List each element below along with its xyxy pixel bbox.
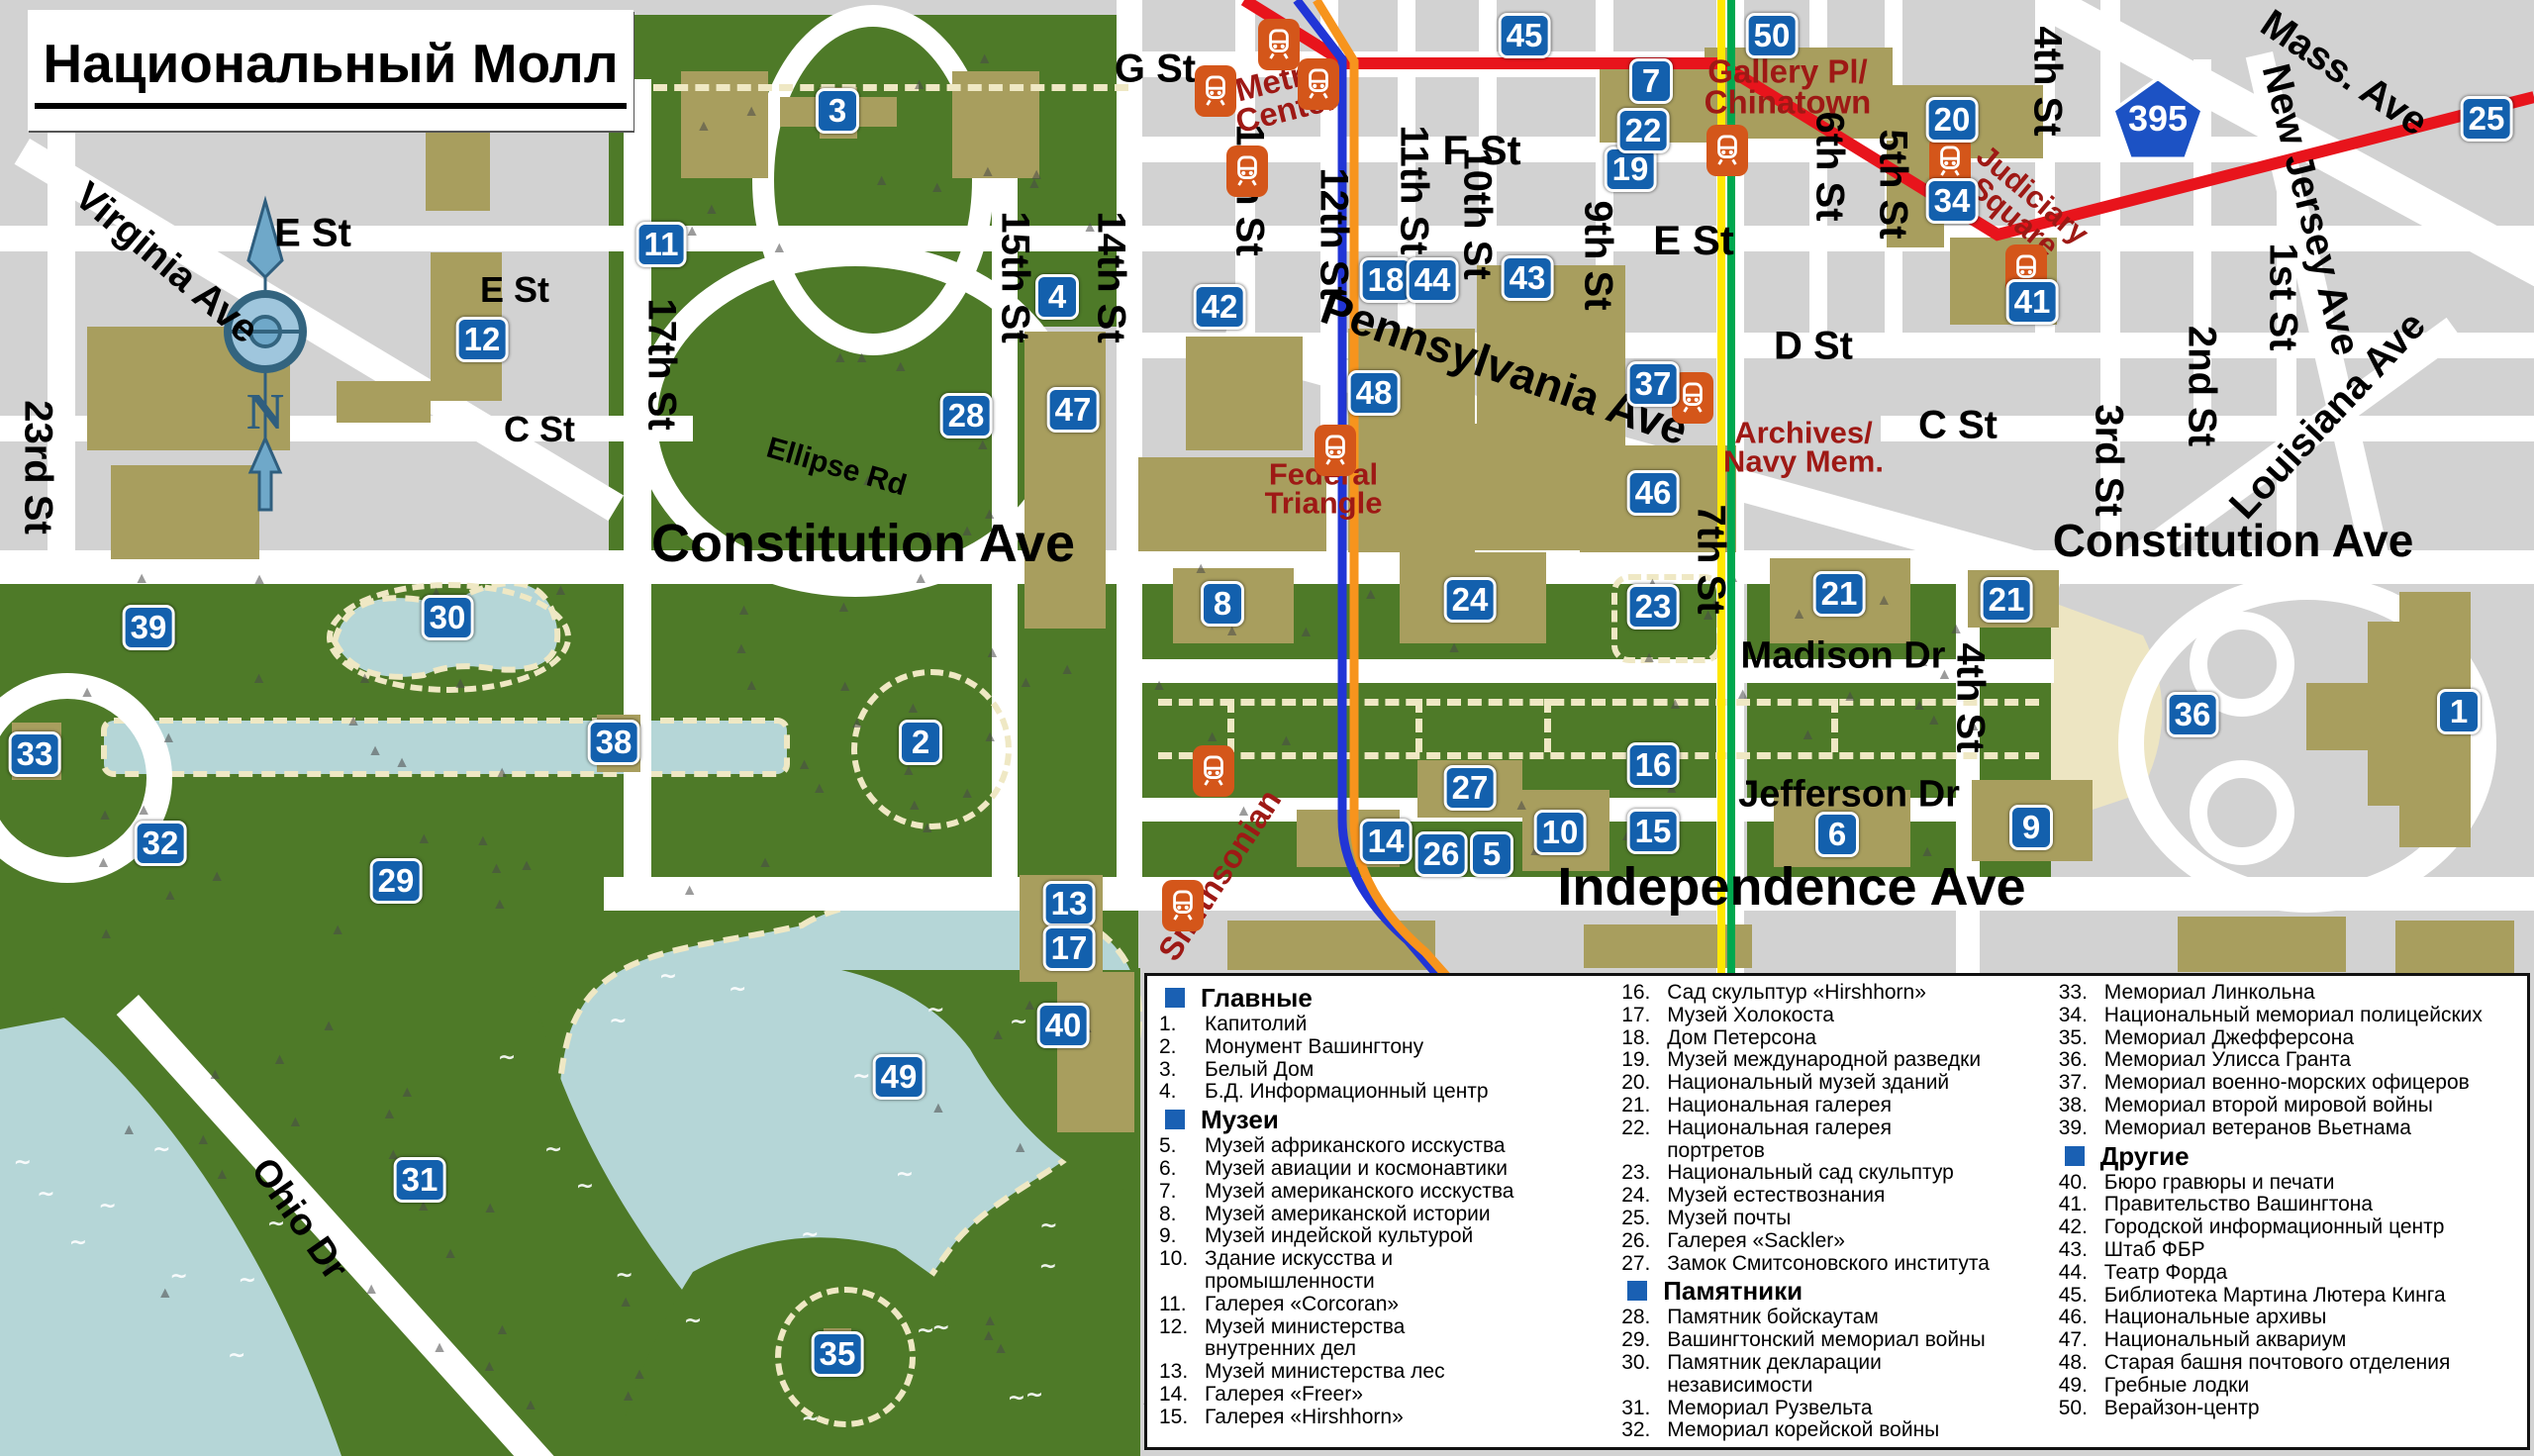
metro-station-icon[interactable] xyxy=(1706,125,1748,176)
legend-item: 27.Замок Смитсоновского института xyxy=(1621,1253,2051,1276)
street-label: 4th St xyxy=(1948,642,1993,752)
legend-section-header: Другие xyxy=(2059,1141,2509,1171)
legend-item-label: Музей американского исскуства xyxy=(1205,1181,1613,1204)
legend-item-number: 1. xyxy=(1159,1014,1205,1036)
legend-item: 14.Галерея «Freer» xyxy=(1159,1384,1613,1407)
metro-station-label: Archives/ Navy Mem. xyxy=(1723,419,1884,477)
legend-item-label: Бюро гравюры и печати xyxy=(2104,1172,2509,1195)
legend-item: 1.Капитолий xyxy=(1159,1014,1613,1036)
street-label: Jefferson Dr xyxy=(1738,774,1960,817)
legend-item-number: 21. xyxy=(1621,1095,1667,1117)
legend-item: 45.Библиотека Мартина Лютера Кинга xyxy=(2059,1285,2509,1308)
metro-station-icon[interactable] xyxy=(1162,880,1204,931)
legend-item-number: 43. xyxy=(2059,1239,2104,1262)
legend-item: 46.Национальные архивы xyxy=(2059,1307,2509,1329)
legend-item: 34.Национальный мемориал полицейских xyxy=(2059,1005,2509,1027)
legend-item: 25.Музей почты xyxy=(1621,1208,2051,1230)
legend-item-number: 35. xyxy=(2059,1027,2104,1050)
poi-marker-22[interactable]: 22 xyxy=(1617,108,1670,153)
legend-item-label: Б.Д. Информационный центр xyxy=(1205,1081,1613,1104)
street-label: E St xyxy=(274,212,351,256)
legend-item-number: 11. xyxy=(1159,1294,1205,1316)
legend-item-label: Дом Петерсона xyxy=(1667,1027,2051,1050)
poi-marker-18[interactable]: 18 xyxy=(1360,257,1413,303)
legend-item-label: Национальная галерея xyxy=(1667,1095,2051,1117)
legend-item-number: 30. xyxy=(1621,1352,1667,1398)
legend-item-label: Мемориал второй мировой войны xyxy=(2104,1095,2509,1117)
poi-marker-8[interactable]: 8 xyxy=(1201,581,1244,627)
legend-item-number: 45. xyxy=(2059,1285,2104,1308)
legend-item-label: Музей международной разведки xyxy=(1667,1049,2051,1072)
legend-item-label: Театр Форда xyxy=(2104,1262,2509,1285)
legend-column-3: 33.Мемориал Линкольна34.Национальный мем… xyxy=(2059,982,2517,1443)
legend-item-number: 2. xyxy=(1159,1036,1205,1059)
poi-marker-2[interactable]: 2 xyxy=(899,720,942,765)
poi-marker-49[interactable]: 49 xyxy=(873,1054,926,1100)
legend-section-header: Музеи xyxy=(1159,1105,1613,1134)
legend-item-number: 5. xyxy=(1159,1135,1205,1158)
map-title: Национальный Молл xyxy=(35,32,626,109)
legend-item-label: Галерея «Freer» xyxy=(1205,1384,1613,1407)
poi-marker-11[interactable]: 11 xyxy=(636,222,687,267)
street-label: E St xyxy=(480,269,549,311)
legend-item-label: Мемориал Рузвельта xyxy=(1667,1398,2051,1420)
legend-item: 16.Сад скульптур «Hirshhorn» xyxy=(1621,982,2051,1005)
legend-item: 17.Музей Холокоста xyxy=(1621,1005,2051,1027)
legend-item: 33.Мемориал Линкольна xyxy=(2059,982,2509,1005)
legend-item-label: Национальный музей зданий xyxy=(1667,1072,2051,1095)
legend-item-label: Мемориал Улисса Гранта xyxy=(2104,1049,2509,1072)
legend-section-title: Главные xyxy=(1201,983,1313,1013)
poi-marker-7[interactable]: 7 xyxy=(1629,58,1673,104)
legend-item: 15.Галерея «Hirshhorn» xyxy=(1159,1407,1613,1429)
legend-item-number: 6. xyxy=(1159,1158,1205,1181)
poi-marker-45[interactable]: 45 xyxy=(1499,13,1551,58)
street-label: 12th St xyxy=(1312,167,1356,299)
legend-item-label: Мемориал Джефферсона xyxy=(2104,1027,2509,1050)
legend-item-number: 15. xyxy=(1159,1407,1205,1429)
legend-item: 11.Галерея «Corcoran» xyxy=(1159,1294,1613,1316)
street-label: C St xyxy=(1918,404,1998,448)
legend-item-number: 8. xyxy=(1159,1204,1205,1226)
poi-marker-12[interactable]: 12 xyxy=(456,317,509,362)
street-label: 5th St xyxy=(1871,129,1915,239)
legend-item-label: Гребные лодки xyxy=(2104,1375,2509,1398)
legend-item: 5.Музей африканского исскуства xyxy=(1159,1135,1613,1158)
legend-item-label: Вашингтонский мемориал войны xyxy=(1667,1329,2051,1352)
legend-item-number: 26. xyxy=(1621,1230,1667,1253)
legend-item-label: Национальный сад скульптур xyxy=(1667,1162,2051,1185)
poi-marker-39[interactable]: 39 xyxy=(123,605,175,650)
legend-item-label: Белый Дом xyxy=(1205,1059,1613,1082)
legend-section-title: Памятники xyxy=(1663,1276,1803,1306)
legend-item-label: Здание искусства и промышленности xyxy=(1205,1248,1613,1294)
legend-item: 19.Музей международной разведки xyxy=(1621,1049,2051,1072)
legend-item-label: Музей министерства внутренних дел xyxy=(1205,1316,1613,1362)
legend-item-label: Памятник бойскаутам xyxy=(1667,1307,2051,1329)
street-label: 23rd St xyxy=(16,400,60,534)
legend-item: 30.Памятник декларации независимости xyxy=(1621,1352,2051,1398)
legend-item: 20.Национальный музей зданий xyxy=(1621,1072,2051,1095)
legend-item-label: Национальный мемориал полицейских xyxy=(2104,1005,2509,1027)
legend-item-number: 27. xyxy=(1621,1253,1667,1276)
legend-bullet-icon xyxy=(1627,1281,1647,1301)
legend-column-1: Главные1.Капитолий2.Монумент Вашингтону3… xyxy=(1159,982,1621,1443)
legend-item: 47.Национальный аквариум xyxy=(2059,1329,2509,1352)
legend-item-number: 36. xyxy=(2059,1049,2104,1072)
legend-item-number: 13. xyxy=(1159,1361,1205,1384)
legend-item-label: Музей естествознания xyxy=(1667,1185,2051,1208)
legend-item-number: 16. xyxy=(1621,982,1667,1005)
street-label: G St xyxy=(1115,48,1196,92)
legend-item-number: 19. xyxy=(1621,1049,1667,1072)
legend-item: 24.Музей естествознания xyxy=(1621,1185,2051,1208)
legend-item-number: 24. xyxy=(1621,1185,1667,1208)
legend-item: 12.Музей министерства внутренних дел xyxy=(1159,1316,1613,1362)
metro-station-icon[interactable] xyxy=(1298,58,1339,110)
metro-station-label: Gallery Pl/ Chinatown xyxy=(1705,56,1872,119)
poi-marker-29[interactable]: 29 xyxy=(370,858,423,904)
poi-marker-43[interactable]: 43 xyxy=(1502,255,1554,301)
legend-item-number: 42. xyxy=(2059,1216,2104,1239)
poi-marker-34[interactable]: 34 xyxy=(1926,178,1979,224)
legend-item-number: 7. xyxy=(1159,1181,1205,1204)
poi-marker-9[interactable]: 9 xyxy=(2009,805,2053,850)
legend-item: 9.Музей индейской культурой xyxy=(1159,1225,1613,1248)
legend-item-number: 38. xyxy=(2059,1095,2104,1117)
legend-item: 49.Гребные лодки xyxy=(2059,1375,2509,1398)
poi-marker-28[interactable]: 28 xyxy=(940,393,993,438)
street-label: Constitution Ave xyxy=(651,513,1075,574)
metro-station-icon[interactable] xyxy=(1193,745,1234,797)
legend-item: 23.Национальный сад скульптур xyxy=(1621,1162,2051,1185)
poi-marker-41[interactable]: 41 xyxy=(2006,279,2059,325)
legend-item-label: Монумент Вашингтону xyxy=(1205,1036,1613,1059)
legend-item: 26.Галерея «Sackler» xyxy=(1621,1230,2051,1253)
legend-item-number: 20. xyxy=(1621,1072,1667,1095)
legend-item-number: 37. xyxy=(2059,1072,2104,1095)
legend-item-number: 47. xyxy=(2059,1329,2104,1352)
poi-marker-3[interactable]: 3 xyxy=(816,88,859,134)
legend-item-label: Музей почты xyxy=(1667,1208,2051,1230)
legend-item-label: Штаб ФБР xyxy=(2104,1239,2509,1262)
legend-item-label: Мемориал корейской войны xyxy=(1667,1419,2051,1442)
poi-marker-50[interactable]: 50 xyxy=(1746,13,1799,58)
legend-item-label: Галерея «Corcoran» xyxy=(1205,1294,1613,1316)
legend-item-number: 4. xyxy=(1159,1081,1205,1104)
street-label: 15th St xyxy=(993,211,1037,342)
legend-item: 44.Театр Форда xyxy=(2059,1262,2509,1285)
poi-marker-20[interactable]: 20 xyxy=(1926,97,1979,143)
legend-item-number: 25. xyxy=(1621,1208,1667,1230)
legend-item: 29.Вашингтонский мемориал войны xyxy=(1621,1329,2051,1352)
legend-item-number: 41. xyxy=(2059,1194,2104,1216)
legend-item-number: 50. xyxy=(2059,1398,2104,1420)
legend-item-label: Национальная галерея портретов xyxy=(1667,1117,2051,1163)
legend-item-number: 44. xyxy=(2059,1262,2104,1285)
legend-item-number: 32. xyxy=(1621,1419,1667,1442)
legend-item-number: 49. xyxy=(2059,1375,2104,1398)
legend-item-label: Правительство Вашингтона xyxy=(2104,1194,2509,1216)
legend-item-label: Национальный аквариум xyxy=(2104,1329,2509,1352)
legend-item-number: 14. xyxy=(1159,1384,1205,1407)
poi-marker-48[interactable]: 48 xyxy=(1348,370,1401,416)
legend-item-label: Галерея «Hirshhorn» xyxy=(1205,1407,1613,1429)
legend-item-label: Верайзон-центр xyxy=(2104,1398,2509,1420)
street-label: C St xyxy=(504,409,575,450)
legend-bullet-icon xyxy=(1165,1110,1185,1129)
legend-item-label: Сад скульптур «Hirshhorn» xyxy=(1667,982,2051,1005)
legend-section-header: Памятники xyxy=(1621,1276,2051,1306)
legend-section-title: Музеи xyxy=(1201,1105,1279,1134)
legend-section-header: Главные xyxy=(1159,983,1613,1013)
legend-item-label: Замок Смитсоновского института xyxy=(1667,1253,2051,1276)
legend-item: 43.Штаб ФБР xyxy=(2059,1239,2509,1262)
legend-item-label: Мемориал ветеранов Вьетнама xyxy=(2104,1117,2509,1140)
street-label: 3rd St xyxy=(2087,404,2131,516)
street-label: 4th St xyxy=(2025,26,2070,136)
legend-item-label: Музей Холокоста xyxy=(1667,1005,2051,1027)
map-legend: Главные1.Капитолий2.Монумент Вашингтону3… xyxy=(1144,973,2530,1450)
svg-text:N: N xyxy=(246,384,284,440)
legend-item: 21.Национальная галерея xyxy=(1621,1095,2051,1117)
street-label: Independence Ave xyxy=(1557,856,2025,918)
street-label: 1st St xyxy=(2261,243,2305,351)
legend-item-number: 17. xyxy=(1621,1005,1667,1027)
map-title-box: Национальный Молл xyxy=(28,10,633,131)
legend-item: 7.Музей американского исскуства xyxy=(1159,1181,1613,1204)
legend-item: 22.Национальная галерея портретов xyxy=(1621,1117,2051,1163)
poi-marker-5[interactable]: 5 xyxy=(1470,831,1513,877)
legend-section-title: Другие xyxy=(2100,1141,2190,1171)
street-label: 14th St xyxy=(1089,211,1133,342)
poi-marker-21[interactable]: 21 xyxy=(1813,571,1866,617)
poi-marker-35[interactable]: 35 xyxy=(812,1331,864,1377)
poi-marker-36[interactable]: 36 xyxy=(2167,692,2219,737)
poi-marker-14[interactable]: 14 xyxy=(1360,819,1413,864)
legend-item-label: Музей индейской культурой xyxy=(1205,1225,1613,1248)
legend-item-label: Библиотека Мартина Лютера Кинга xyxy=(2104,1285,2509,1308)
legend-item-label: Национальные архивы xyxy=(2104,1307,2509,1329)
legend-item-label: Мемориал Линкольна xyxy=(2104,982,2509,1005)
street-label: 9th St xyxy=(1576,200,1620,310)
street-label: D St xyxy=(1774,325,1853,369)
poi-marker-4[interactable]: 4 xyxy=(1035,274,1079,320)
poi-marker-15[interactable]: 15 xyxy=(1627,809,1680,854)
poi-marker-47[interactable]: 47 xyxy=(1047,387,1100,433)
legend-item: 36.Мемориал Улисса Гранта xyxy=(2059,1049,2509,1072)
poi-marker-23[interactable]: 23 xyxy=(1627,584,1680,630)
poi-marker-42[interactable]: 42 xyxy=(1194,284,1246,330)
poi-marker-26[interactable]: 26 xyxy=(1415,831,1468,877)
poi-marker-17[interactable]: 17 xyxy=(1043,925,1096,971)
legend-bullet-icon xyxy=(1165,988,1185,1008)
poi-marker-44[interactable]: 44 xyxy=(1407,257,1459,303)
legend-item: 10.Здание искусства и промышленности xyxy=(1159,1248,1613,1294)
legend-item-label: Городской информационный центр xyxy=(2104,1216,2509,1239)
metro-station-icon[interactable] xyxy=(1226,146,1268,197)
legend-item-number: 31. xyxy=(1621,1398,1667,1420)
legend-item-number: 39. xyxy=(2059,1117,2104,1140)
street-label: Madison Dr xyxy=(1741,635,1946,678)
poi-marker-21[interactable]: 21 xyxy=(1981,577,2033,623)
street-label: 2nd St xyxy=(2180,326,2224,446)
street-label: Constitution Ave xyxy=(2053,514,2414,567)
street-label: 11th St xyxy=(1392,125,1436,254)
legend-item-number: 3. xyxy=(1159,1059,1205,1082)
street-label: E St xyxy=(1653,217,1734,264)
legend-item: 18.Дом Петерсона xyxy=(1621,1027,2051,1050)
legend-item-label: Капитолий xyxy=(1205,1014,1613,1036)
legend-item: 28.Памятник бойскаутам xyxy=(1621,1307,2051,1329)
poi-marker-46[interactable]: 46 xyxy=(1627,470,1680,516)
legend-item-label: Музей американской истории xyxy=(1205,1204,1613,1226)
legend-item-number: 22. xyxy=(1621,1117,1667,1163)
legend-item: 38.Мемориал второй мировой войны xyxy=(2059,1095,2509,1117)
legend-item: 31.Мемориал Рузвельта xyxy=(1621,1398,2051,1420)
legend-item: 32.Мемориал корейской войны xyxy=(1621,1419,2051,1442)
legend-item: 50.Верайзон-центр xyxy=(2059,1398,2509,1420)
poi-marker-38[interactable]: 38 xyxy=(588,720,640,765)
poi-marker-25[interactable]: 25 xyxy=(2461,96,2513,142)
legend-item-label: Музей министерства лес xyxy=(1205,1361,1613,1384)
street-label: 10th St xyxy=(1455,147,1500,279)
poi-marker-30[interactable]: 30 xyxy=(422,595,474,640)
legend-item: 42.Городской информационный центр xyxy=(2059,1216,2509,1239)
poi-marker-33[interactable]: 33 xyxy=(9,731,61,777)
street-label: 7th St xyxy=(1689,504,1733,614)
poi-marker-1[interactable]: 1 xyxy=(2437,689,2481,734)
legend-item: 8.Музей американской истории xyxy=(1159,1204,1613,1226)
poi-marker-6[interactable]: 6 xyxy=(1815,812,1859,857)
street-label: 6th St xyxy=(1807,111,1852,221)
legend-item-number: 12. xyxy=(1159,1316,1205,1362)
legend-item-number: 46. xyxy=(2059,1307,2104,1329)
legend-item: 13.Музей министерства лес xyxy=(1159,1361,1613,1384)
poi-marker-16[interactable]: 16 xyxy=(1627,742,1680,788)
legend-item-number: 48. xyxy=(2059,1352,2104,1375)
legend-item-number: 10. xyxy=(1159,1248,1205,1294)
metro-station-icon[interactable] xyxy=(1195,65,1236,117)
legend-item-label: Старая башня почтового отделения xyxy=(2104,1352,2509,1375)
legend-item-label: Мемориал военно-морских офицеров xyxy=(2104,1072,2509,1095)
metro-station-icon[interactable] xyxy=(1315,425,1356,476)
legend-item: 35.Мемориал Джефферсона xyxy=(2059,1027,2509,1050)
legend-item: 6.Музей авиации и космонавтики xyxy=(1159,1158,1613,1181)
legend-item: 40.Бюро гравюры и печати xyxy=(2059,1172,2509,1195)
poi-marker-27[interactable]: 27 xyxy=(1444,765,1497,811)
legend-item: 3.Белый Дом xyxy=(1159,1059,1613,1082)
legend-item: 4.Б.Д. Информационный центр xyxy=(1159,1081,1613,1104)
legend-item-number: 29. xyxy=(1621,1329,1667,1352)
legend-item-label: Галерея «Sackler» xyxy=(1667,1230,2051,1253)
legend-item-number: 23. xyxy=(1621,1162,1667,1185)
legend-item-number: 9. xyxy=(1159,1225,1205,1248)
legend-item: 48.Старая башня почтового отделения xyxy=(2059,1352,2509,1375)
legend-item: 2.Монумент Вашингтону xyxy=(1159,1036,1613,1059)
poi-marker-37[interactable]: 37 xyxy=(1627,361,1680,407)
national-mall-map: ▲▲▲▲▲▲▲▲▲▲▲▲▲▲▲▲▲▲▲▲▲▲▲▲▲▲▲▲▲▲▲▲▲▲▲▲▲▲▲▲… xyxy=(0,0,2534,1456)
legend-item-number: 18. xyxy=(1621,1027,1667,1050)
poi-marker-32[interactable]: 32 xyxy=(135,821,187,866)
legend-item-label: Музей африканского исскуства xyxy=(1205,1135,1613,1158)
legend-item-number: 33. xyxy=(2059,982,2104,1005)
street-label: 17th St xyxy=(639,298,684,430)
legend-item-number: 28. xyxy=(1621,1307,1667,1329)
legend-item: 37.Мемориал военно-морских офицеров xyxy=(2059,1072,2509,1095)
poi-marker-24[interactable]: 24 xyxy=(1444,577,1497,623)
legend-item-label: Памятник декларации независимости xyxy=(1667,1352,2051,1398)
legend-bullet-icon xyxy=(2065,1146,2085,1166)
poi-marker-40[interactable]: 40 xyxy=(1037,1003,1090,1048)
legend-item-number: 40. xyxy=(2059,1172,2104,1195)
legend-item-label: Музей авиации и космонавтики xyxy=(1205,1158,1613,1181)
poi-marker-13[interactable]: 13 xyxy=(1043,881,1096,926)
shield-395-label: 395 xyxy=(2128,98,2188,140)
legend-item-number: 34. xyxy=(2059,1005,2104,1027)
legend-item: 39.Мемориал ветеранов Вьетнама xyxy=(2059,1117,2509,1140)
legend-column-2: 16.Сад скульптур «Hirshhorn»17.Музей Хол… xyxy=(1621,982,2059,1443)
legend-item: 41.Правительство Вашингтона xyxy=(2059,1194,2509,1216)
poi-marker-10[interactable]: 10 xyxy=(1534,810,1587,855)
metro-station-icon[interactable] xyxy=(1258,19,1300,70)
poi-marker-31[interactable]: 31 xyxy=(394,1157,446,1203)
